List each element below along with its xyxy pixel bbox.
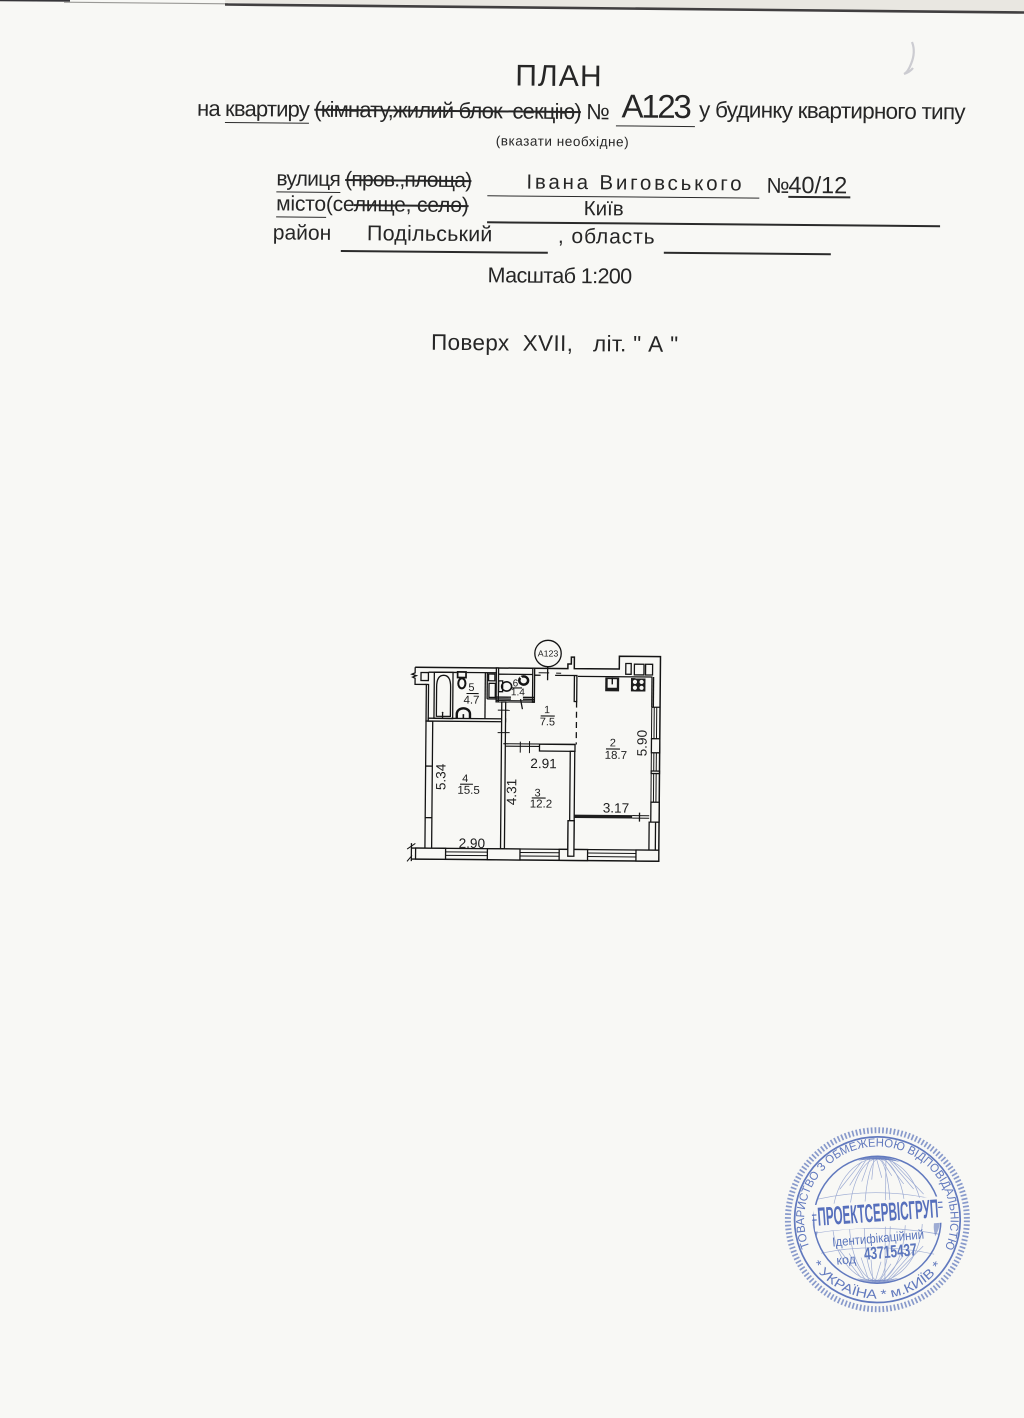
svg-text:2: 2 bbox=[610, 737, 616, 749]
svg-text:12.2: 12.2 bbox=[530, 798, 552, 810]
svg-text:15.5: 15.5 bbox=[457, 785, 479, 797]
svg-text:4.31: 4.31 bbox=[504, 779, 519, 806]
svg-text:4: 4 bbox=[462, 773, 468, 785]
svg-text:А123: А123 bbox=[538, 648, 559, 658]
svg-text:* УКРАЇНА * м.КИЇВ *: * УКРАЇНА * м.КИЇВ * bbox=[809, 1257, 944, 1302]
svg-text:3.17: 3.17 bbox=[603, 800, 630, 815]
svg-text:5.90: 5.90 bbox=[635, 729, 650, 756]
svg-text:4.7: 4.7 bbox=[463, 695, 479, 707]
svg-text:5.34: 5.34 bbox=[433, 763, 448, 790]
svg-text:1.4: 1.4 bbox=[511, 687, 525, 698]
svg-text:2.91: 2.91 bbox=[530, 756, 557, 771]
svg-text:5: 5 bbox=[468, 682, 474, 694]
svg-text:18.7: 18.7 bbox=[605, 750, 627, 762]
svg-text:7.5: 7.5 bbox=[540, 716, 555, 728]
svg-text:2.90: 2.90 bbox=[459, 836, 486, 851]
svg-text:1: 1 bbox=[544, 704, 550, 716]
